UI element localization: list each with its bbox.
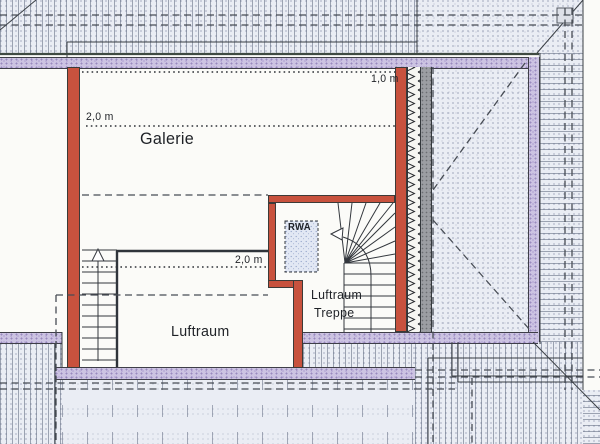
dim-label-right: 1,0 m xyxy=(371,73,399,85)
room-label-luftraum: Luftraum xyxy=(171,323,230,340)
stair-direction-arrow xyxy=(92,249,104,261)
dim-label-galerie: 2,0 m xyxy=(86,111,114,123)
floor-plan: 2,0 m Galerie 1,0 m 2,0 m Luftraum Luftr… xyxy=(0,0,600,444)
stair-straight xyxy=(82,249,117,361)
room-label-galerie: Galerie xyxy=(140,129,194,149)
rwa-label: RWA xyxy=(288,222,311,233)
room-label-stair-1: Luftraum xyxy=(311,287,362,302)
room-label-stair-2: Treppe xyxy=(314,305,354,320)
dim-label-luftraum: 2,0 m xyxy=(235,254,263,266)
lower-storey-outlines xyxy=(55,332,583,444)
insulation-zigzag xyxy=(407,67,420,332)
winder-direction-arrow xyxy=(331,228,343,240)
luftraum-boundary xyxy=(116,251,268,367)
